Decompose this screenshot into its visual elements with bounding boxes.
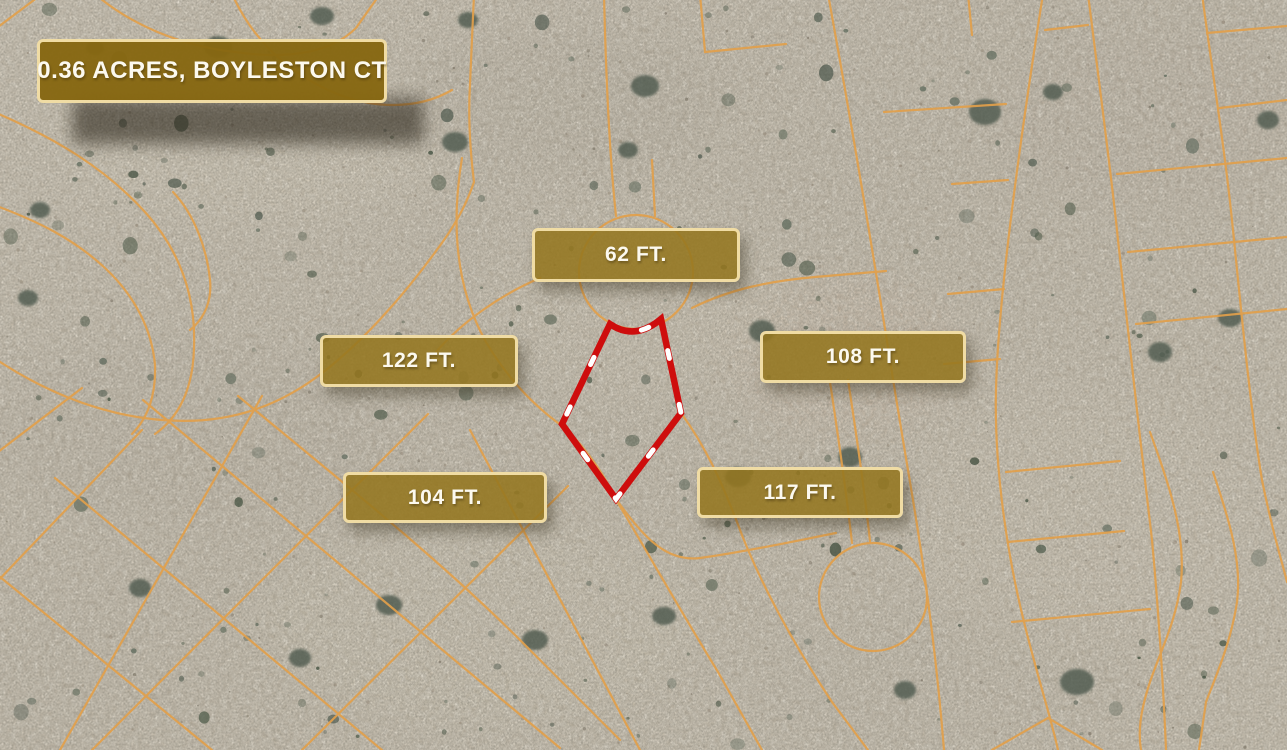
map-canvas: 0.36 ACRES, BOYLESTON CT 62 FT. 122 FT. …: [0, 0, 1287, 750]
measurement-text-right: 108 FT.: [826, 345, 900, 369]
measurement-text-bottom-left: 104 FT.: [408, 486, 482, 510]
measurement-text-left: 122 FT.: [382, 349, 456, 373]
parcel-title-badge: 0.36 ACRES, BOYLESTON CT: [37, 39, 387, 103]
measurement-label-top: 62 FT.: [532, 228, 740, 282]
measurement-text-top: 62 FT.: [605, 243, 667, 267]
measurement-label-bottom-right: 117 FT.: [697, 467, 903, 518]
measurement-text-bottom-right: 117 FT.: [763, 481, 836, 505]
measurement-label-bottom-left: 104 FT.: [343, 472, 547, 523]
measurement-label-right: 108 FT.: [760, 331, 966, 383]
title-badge-shadow: [72, 98, 424, 144]
parcel-title-text: 0.36 ACRES, BOYLESTON CT: [37, 57, 386, 85]
measurement-label-left: 122 FT.: [320, 335, 518, 387]
